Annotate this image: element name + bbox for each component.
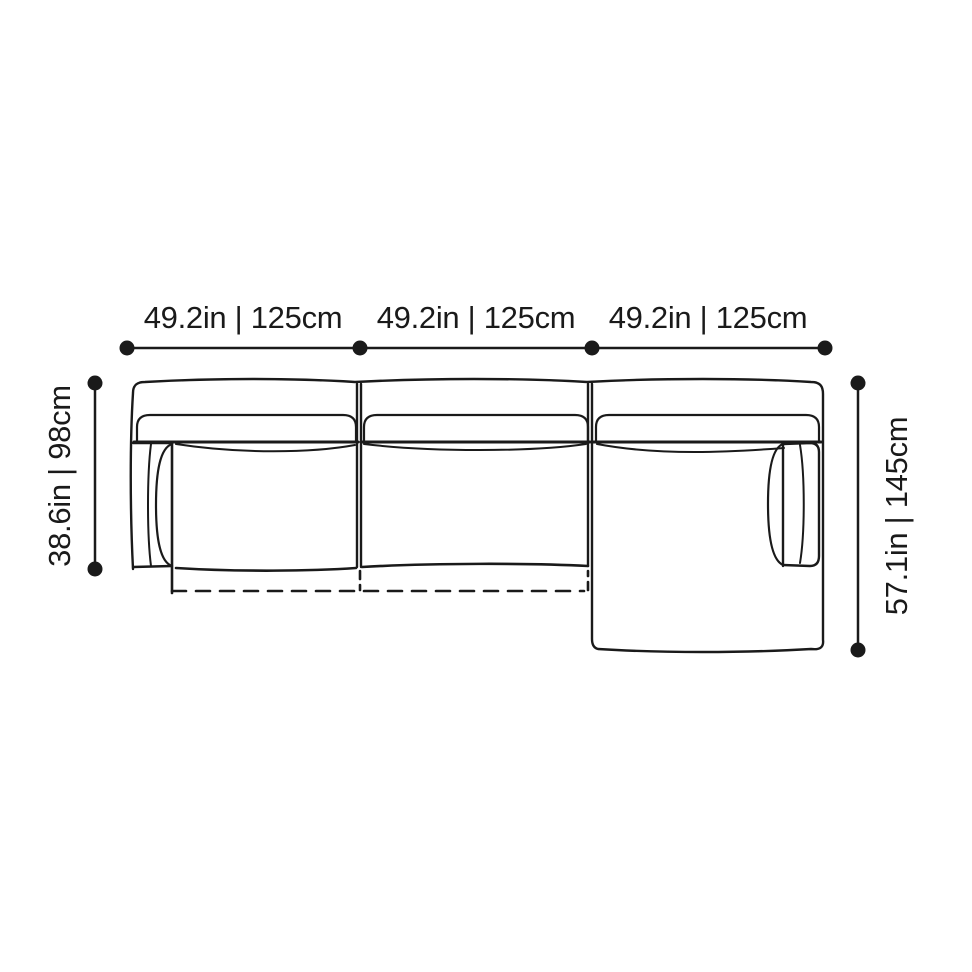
back-cushion-left (137, 415, 356, 442)
top-dimension-label-1: 49.2in | 125cm (123, 300, 363, 336)
top-dimension-label-2: 49.2in | 125cm (356, 300, 596, 336)
seat-front-edge-middle (362, 564, 588, 567)
dimension-endpoint-dot (818, 341, 833, 356)
module-divider-1 (357, 384, 361, 567)
left-armrest-inner-panel (148, 444, 151, 566)
right-armrest (768, 443, 819, 566)
sofa-outer-boundary (131, 379, 823, 652)
sofa-outline (131, 379, 823, 652)
dimension-endpoint-dot (851, 643, 866, 658)
seat-extension-dashed (172, 571, 588, 591)
top-dimension-label-3: 49.2in | 125cm (588, 300, 828, 336)
back-cushion-middle (364, 415, 588, 442)
left-armrest-capsule (156, 444, 172, 566)
dimension-endpoint-dot (88, 562, 103, 577)
left-armrest (133, 443, 172, 593)
sofa-dimension-drawing (0, 0, 972, 972)
dimension-endpoint-dot (851, 376, 866, 391)
dimension-endpoint-dot (88, 376, 103, 391)
left-dimension-label: 38.6in | 98cm (42, 346, 78, 606)
right-dimension-label: 57.1in | 145cm (879, 386, 915, 646)
back-cushion-right (596, 415, 819, 442)
dimension-endpoint-dot (120, 341, 135, 356)
right-armrest-capsule (768, 444, 783, 565)
top-dimension-line (120, 341, 833, 356)
right-dimension-line (851, 376, 866, 658)
left-dimension-line (88, 376, 103, 577)
right-armrest-inner-panel (800, 445, 804, 563)
dimension-endpoint-dot (585, 341, 600, 356)
seat-back-sag-curves (176, 444, 784, 452)
dimension-endpoint-dot (353, 341, 368, 356)
seat-front-edge-left (176, 568, 356, 571)
diagram-canvas: 49.2in | 125cm 49.2in | 125cm 49.2in | 1… (0, 0, 972, 972)
